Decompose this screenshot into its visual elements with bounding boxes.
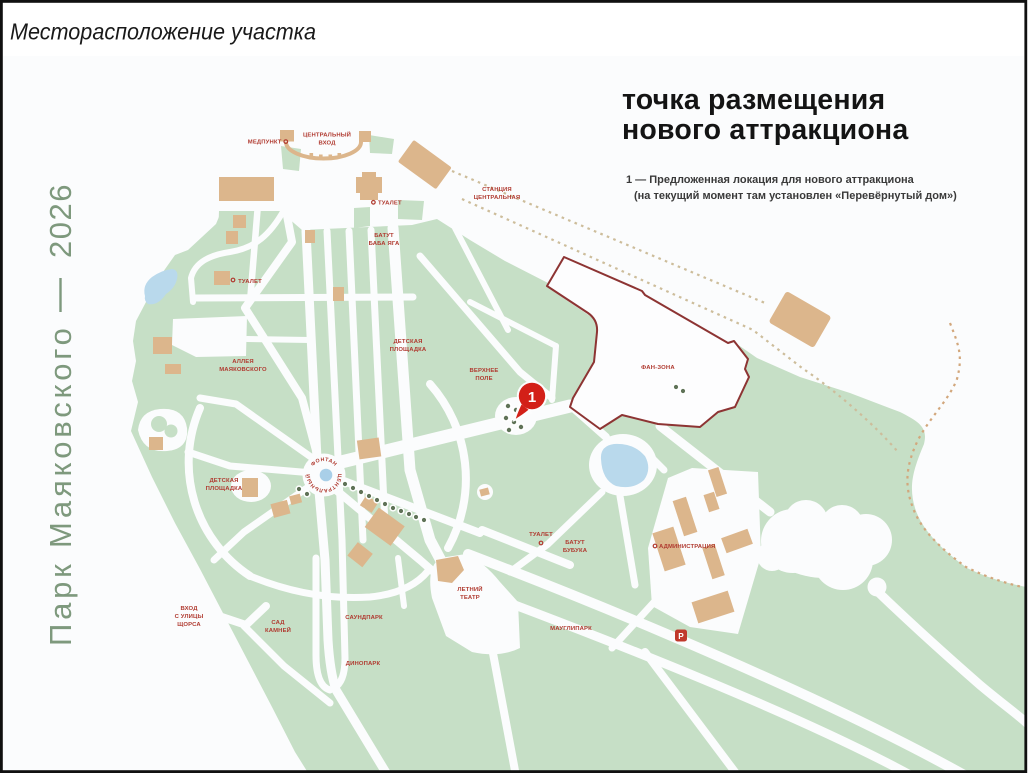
svg-text:ДЕТСКАЯ: ДЕТСКАЯ [393,339,422,345]
svg-text:1 — Предложенная локация для н: 1 — Предложенная локация для нового аттр… [626,174,915,186]
svg-text:ЦЕНТРАЛЬНЫЙ: ЦЕНТРАЛЬНЫЙ [303,131,351,139]
svg-text:ПЛОЩАДКА: ПЛОЩАДКА [390,347,427,353]
svg-text:ДЕТСКАЯ: ДЕТСКАЯ [209,478,238,484]
svg-text:ТУАЛЕТ: ТУАЛЕТ [378,201,402,207]
svg-text:ТУАЛЕТ: ТУАЛЕТ [529,532,553,538]
svg-text:АДМИНИСТРАЦИЯ: АДМИНИСТРАЦИЯ [659,544,715,550]
svg-text:ЦЕНТРАЛЬНАЯ: ЦЕНТРАЛЬНАЯ [474,195,521,201]
svg-text:ВХОД: ВХОД [318,141,336,147]
svg-text:P: P [678,632,684,641]
svg-text:С УЛИЦЫ: С УЛИЦЫ [175,614,204,620]
svg-text:МАЯКОВСКОГО: МАЯКОВСКОГО [219,367,267,373]
svg-text:ЩОРСА: ЩОРСА [177,622,201,628]
svg-text:БАТУТ: БАТУТ [374,233,394,239]
svg-text:СТАНЦИЯ: СТАНЦИЯ [482,187,512,193]
svg-text:КАМНЕЙ: КАМНЕЙ [265,626,291,634]
svg-text:Парк Маяковского: Парк Маяковского [43,324,78,646]
svg-text:ПОЛЕ: ПОЛЕ [475,376,492,382]
svg-text:ФАН-ЗОНА: ФАН-ЗОНА [641,365,675,371]
svg-text:ТУАЛЕТ: ТУАЛЕТ [238,279,262,285]
svg-text:БУБУКА: БУБУКА [563,548,588,554]
svg-text:(на текущий момент там установ: (на текущий момент там установлен «Перев… [634,190,957,202]
svg-text:АЛЛЕЯ: АЛЛЕЯ [232,359,254,365]
svg-text:ЛЕТНИЙ: ЛЕТНИЙ [457,585,482,593]
svg-text:1: 1 [528,389,536,406]
svg-text:ВХОД: ВХОД [180,606,198,612]
svg-text:ПЛОЩАДКА: ПЛОЩАДКА [206,486,243,492]
svg-text:САД: САД [271,620,285,626]
svg-text:ТЕАТР: ТЕАТР [460,595,480,601]
svg-text:нового аттракциона: нового аттракциона [622,114,909,146]
svg-text:БАТУТ: БАТУТ [565,540,585,546]
svg-text:ВЕРХНЕЕ: ВЕРХНЕЕ [470,368,499,374]
svg-text:МАУГЛИПАРК: МАУГЛИПАРК [550,626,592,632]
svg-text:БАБА ЯГА: БАБА ЯГА [369,241,400,247]
svg-text:ДИНОПАРК: ДИНОПАРК [346,661,381,667]
svg-text:Месторасположение участка: Месторасположение участка [10,19,316,45]
svg-text:2026: 2026 [43,183,78,258]
svg-text:МЕДПУНКТ: МЕДПУНКТ [248,140,282,146]
svg-text:точка размещения: точка размещения [622,84,885,116]
svg-text:САУНДПАРК: САУНДПАРК [345,615,383,621]
